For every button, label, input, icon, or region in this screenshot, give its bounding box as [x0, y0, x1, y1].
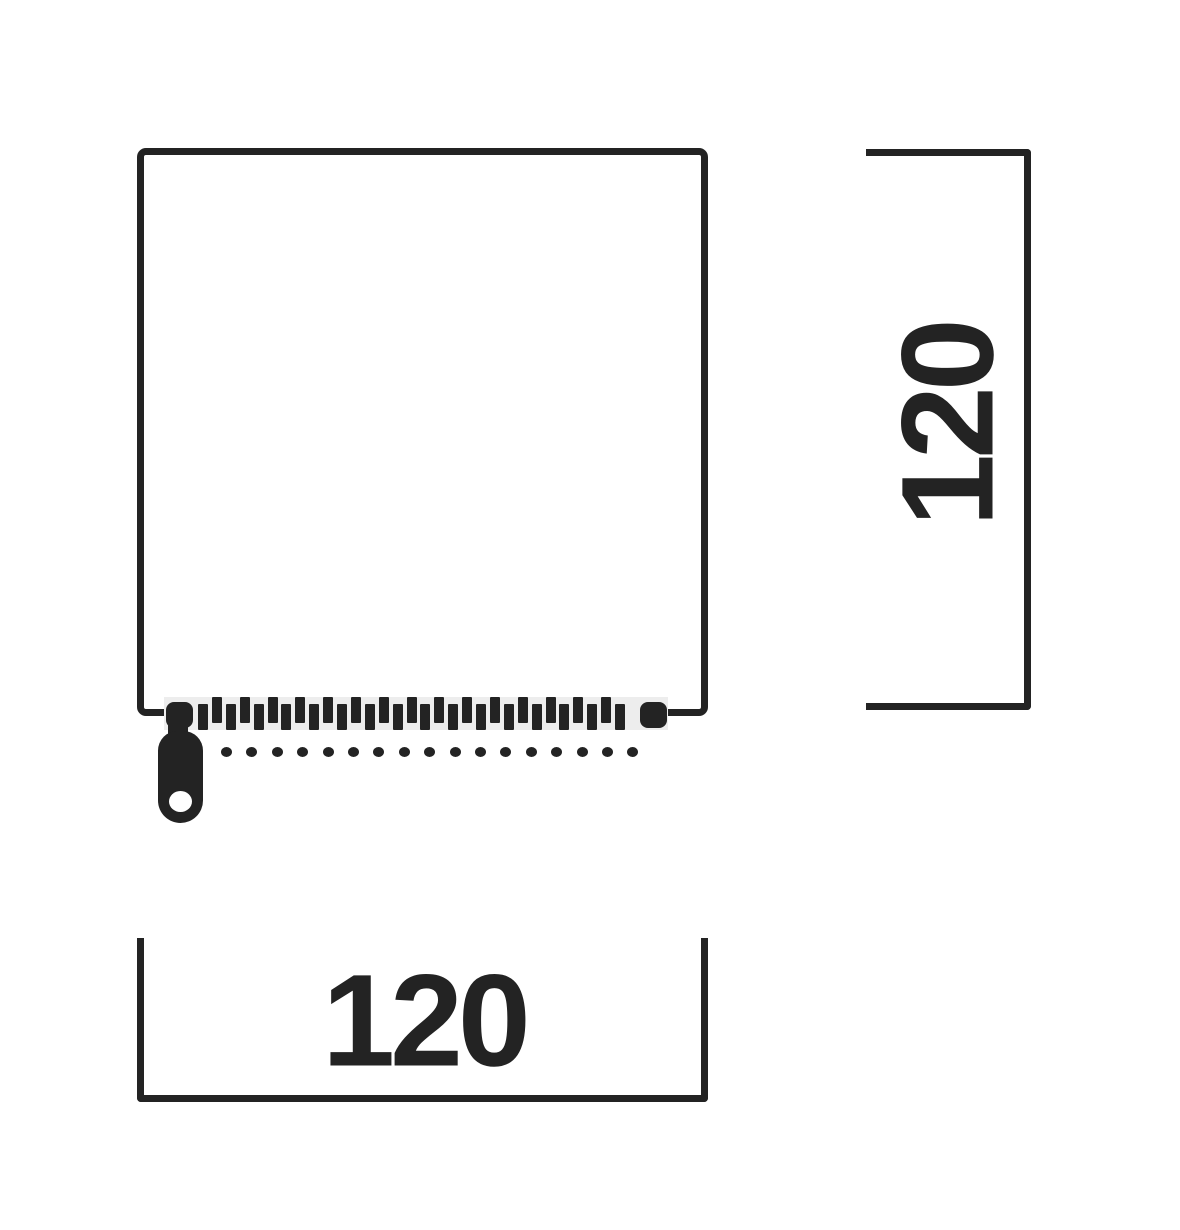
zipper-tooth: [365, 704, 375, 730]
zipper-tooth: [518, 697, 528, 723]
zipper-tooth: [601, 697, 611, 723]
zipper-tooth: [573, 697, 583, 723]
zipper-tooth: [504, 704, 514, 730]
zipper-tooth: [393, 704, 403, 730]
stitch-dot: [272, 747, 283, 757]
zipper-tooth: [212, 697, 222, 723]
stitch-dot: [323, 747, 334, 757]
zipper-tooth: [379, 697, 389, 723]
stitch-dot: [627, 747, 638, 757]
width-dimension-label: 120: [322, 955, 526, 1086]
cushion-outline: [137, 148, 708, 716]
zipper-tooth: [559, 704, 569, 730]
zipper-tooth: [295, 697, 305, 723]
zipper-tooth: [407, 697, 417, 723]
stitch-dot: [475, 747, 486, 757]
zipper-tooth: [615, 704, 625, 730]
zipper-tooth: [546, 697, 556, 723]
zipper-pull-hole: [169, 791, 192, 812]
zipper-tooth: [448, 704, 458, 730]
height-dimension-label: 120: [882, 323, 1013, 527]
zipper-tooth: [240, 697, 250, 723]
stitch-dot: [221, 747, 232, 757]
zipper-tooth: [587, 704, 597, 730]
zipper-tooth: [226, 704, 236, 730]
zipper-tooth: [337, 704, 347, 730]
stitch-dot: [450, 747, 461, 757]
zipper-tooth: [281, 704, 291, 730]
dimension-diagram: 120 120: [0, 0, 1180, 1230]
zipper-tooth: [323, 697, 333, 723]
stitch-dot: [526, 747, 537, 757]
stitch-dot: [399, 747, 410, 757]
zipper-stop-right: [640, 702, 667, 728]
stitch-dot: [500, 747, 511, 757]
stitch-dot: [373, 747, 384, 757]
stitch-dot: [577, 747, 588, 757]
stitch-dot: [551, 747, 562, 757]
stitch-dot: [297, 747, 308, 757]
zipper-tooth: [434, 697, 444, 723]
stitch-dot: [348, 747, 359, 757]
zipper-tooth: [351, 697, 361, 723]
zipper-tooth: [198, 704, 208, 730]
zipper-tooth: [268, 697, 278, 723]
stitch-dot: [424, 747, 435, 757]
zipper-tooth: [254, 704, 264, 730]
zipper-tooth: [532, 704, 542, 730]
zipper-tooth: [420, 704, 430, 730]
zipper-tooth: [462, 697, 472, 723]
zipper-tooth: [490, 697, 500, 723]
zipper-tooth: [476, 704, 486, 730]
stitch-dot: [246, 747, 257, 757]
zipper-tooth: [309, 704, 319, 730]
stitch-dot: [602, 747, 613, 757]
